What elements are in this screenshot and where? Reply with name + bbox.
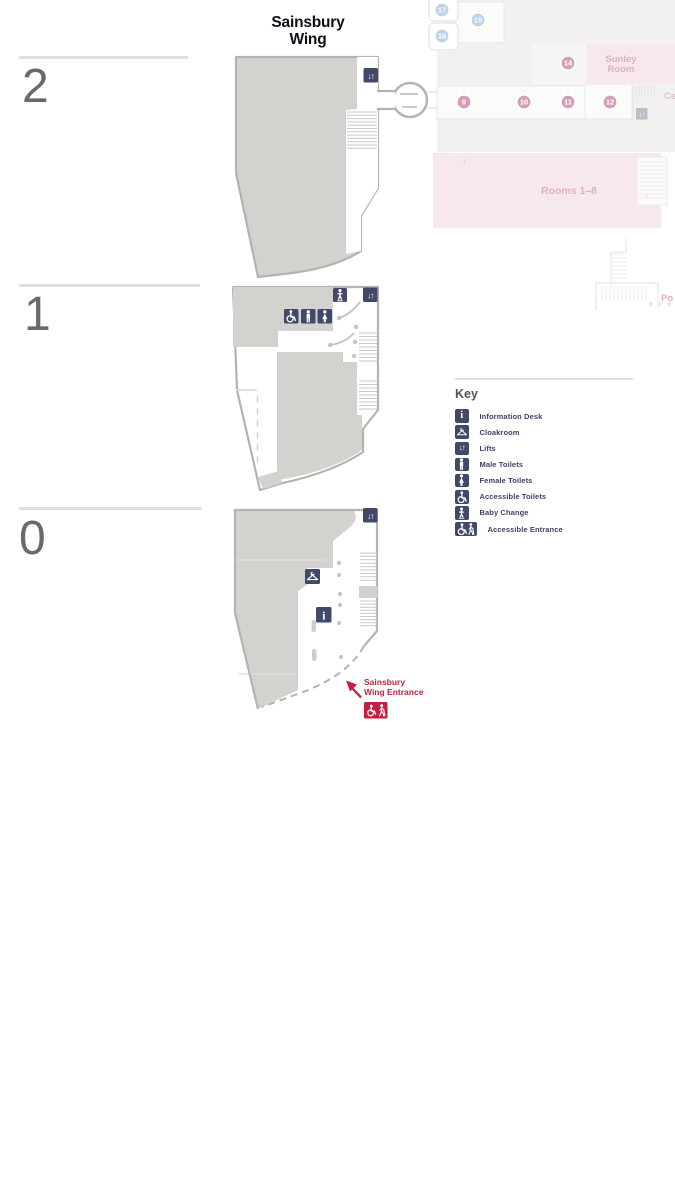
floor-1-plan: ↓↑ [225,283,385,495]
lift-icon: ↓↑ [363,508,378,523]
svg-text:9: 9 [462,98,466,107]
key-label: Male Toilets [480,460,524,469]
room-circle: 10 [517,95,531,109]
key-label: Accessible Entrance [488,525,563,534]
male-toilets-icon [301,309,316,324]
page-title-line1: Sainsbury [266,14,350,31]
baby-change-icon [455,506,469,520]
cloakroom-icon [455,425,469,439]
key-label: Cloakroom [480,428,520,437]
floor-2-plan: ↓↑ [225,50,440,285]
key-row-female-toilets: Female Toilets [455,473,637,489]
key-row-male-toilets: Male Toilets [455,456,637,472]
room-circle: 9 [457,95,471,109]
key-label: Female Toilets [480,476,533,485]
entrance-label: Sainsbury Wing Entrance [364,678,438,698]
svg-text:11: 11 [564,98,572,107]
room-circle: 16 [435,29,449,43]
key-row-accessible-toilets: Accessible Toilets [455,489,637,505]
entrance-arrowhead [346,681,357,692]
lift-icon: ↓↑ [363,288,378,303]
room-circle: 12 [603,95,617,109]
svg-text:15: 15 [474,16,482,25]
key-row-information-desk: i Information Desk [455,408,637,424]
up-arrow-icon: ↑ [462,157,467,168]
room-circle: 11 [561,95,575,109]
portico-label-cut: Po [661,293,673,304]
sunley-room-label: Room [608,64,635,75]
accessible-toilets-icon [455,490,469,504]
portico-outline [596,238,671,310]
svg-text:↓↑: ↓↑ [368,71,375,81]
floor-0-label: 0 [19,515,46,563]
information-icon: i [455,409,469,423]
cloakroom-icon [305,569,320,584]
svg-text:↓↑: ↓↑ [639,112,645,119]
svg-text:17: 17 [438,6,446,15]
key-title: Key [455,387,637,401]
svg-text:↓↑: ↓↑ [367,291,374,301]
map-key: Key i Information Desk Cloakroom ↓↑ Lift… [455,378,637,537]
floor-0-divider [19,507,202,510]
key-divider [455,378,633,380]
lift-icon: ↓↑ [364,68,379,83]
link-bridge [377,83,438,117]
central-hall-label-cut: Ce [664,91,675,102]
entrance-label-line2: Wing Entrance [364,688,438,698]
key-label: Baby Change [480,508,529,517]
room-circle: 15 [471,13,485,27]
female-toilets-icon [455,474,469,488]
key-row-cloakroom: Cloakroom [455,424,637,440]
accessible-entrance-icon [364,702,388,719]
room-circle: 17 [435,3,449,17]
accessible-entrance-icon [455,522,477,536]
svg-text:↓↑: ↓↑ [367,511,374,521]
rooms-1-8-label: Rooms 1–8 [541,185,597,197]
lifts-icon: ↓↑ [455,442,469,456]
floor-2-label: 2 [22,63,49,111]
key-row-baby-change: Baby Change [455,505,637,521]
information-desk-icon: i [316,607,332,623]
page-title: Sainsbury Wing [266,14,350,48]
room-circle: 14 [561,56,575,70]
entrance-arrow [352,688,361,698]
key-label: Lifts [480,444,496,453]
key-row-accessible-entrance: Accessible Entrance [455,521,637,537]
down-arrow-icon: ↓ [644,189,649,200]
floor-1-divider [19,284,200,287]
female-toilets-icon [318,309,333,324]
baby-change-icon [333,288,347,302]
lift-icon: ↓↑ [636,108,648,120]
svg-text:14: 14 [564,59,573,68]
male-toilets-icon [455,458,469,472]
svg-text:16: 16 [438,32,446,41]
key-label: Information Desk [480,412,543,421]
key-row-lifts: ↓↑ Lifts [455,440,637,456]
key-label: Accessible Toilets [480,492,547,501]
floor-1-label: 1 [24,291,51,339]
svg-text:10: 10 [520,98,528,107]
stair-landing [359,586,378,598]
page-title-line2: Wing [266,31,350,48]
link-bridge-circle [393,83,427,117]
stairs-hatch [636,86,654,97]
floorplan-page: ↑ ↓ ↓↑ Sunley Room Rooms 1–8 Ce Po 17 16… [0,0,675,1200]
accessible-toilets-icon [284,309,299,324]
svg-text:12: 12 [606,98,614,107]
background-structure: ↑ ↓ ↓↑ [429,0,675,310]
floor-2-divider [19,56,188,59]
